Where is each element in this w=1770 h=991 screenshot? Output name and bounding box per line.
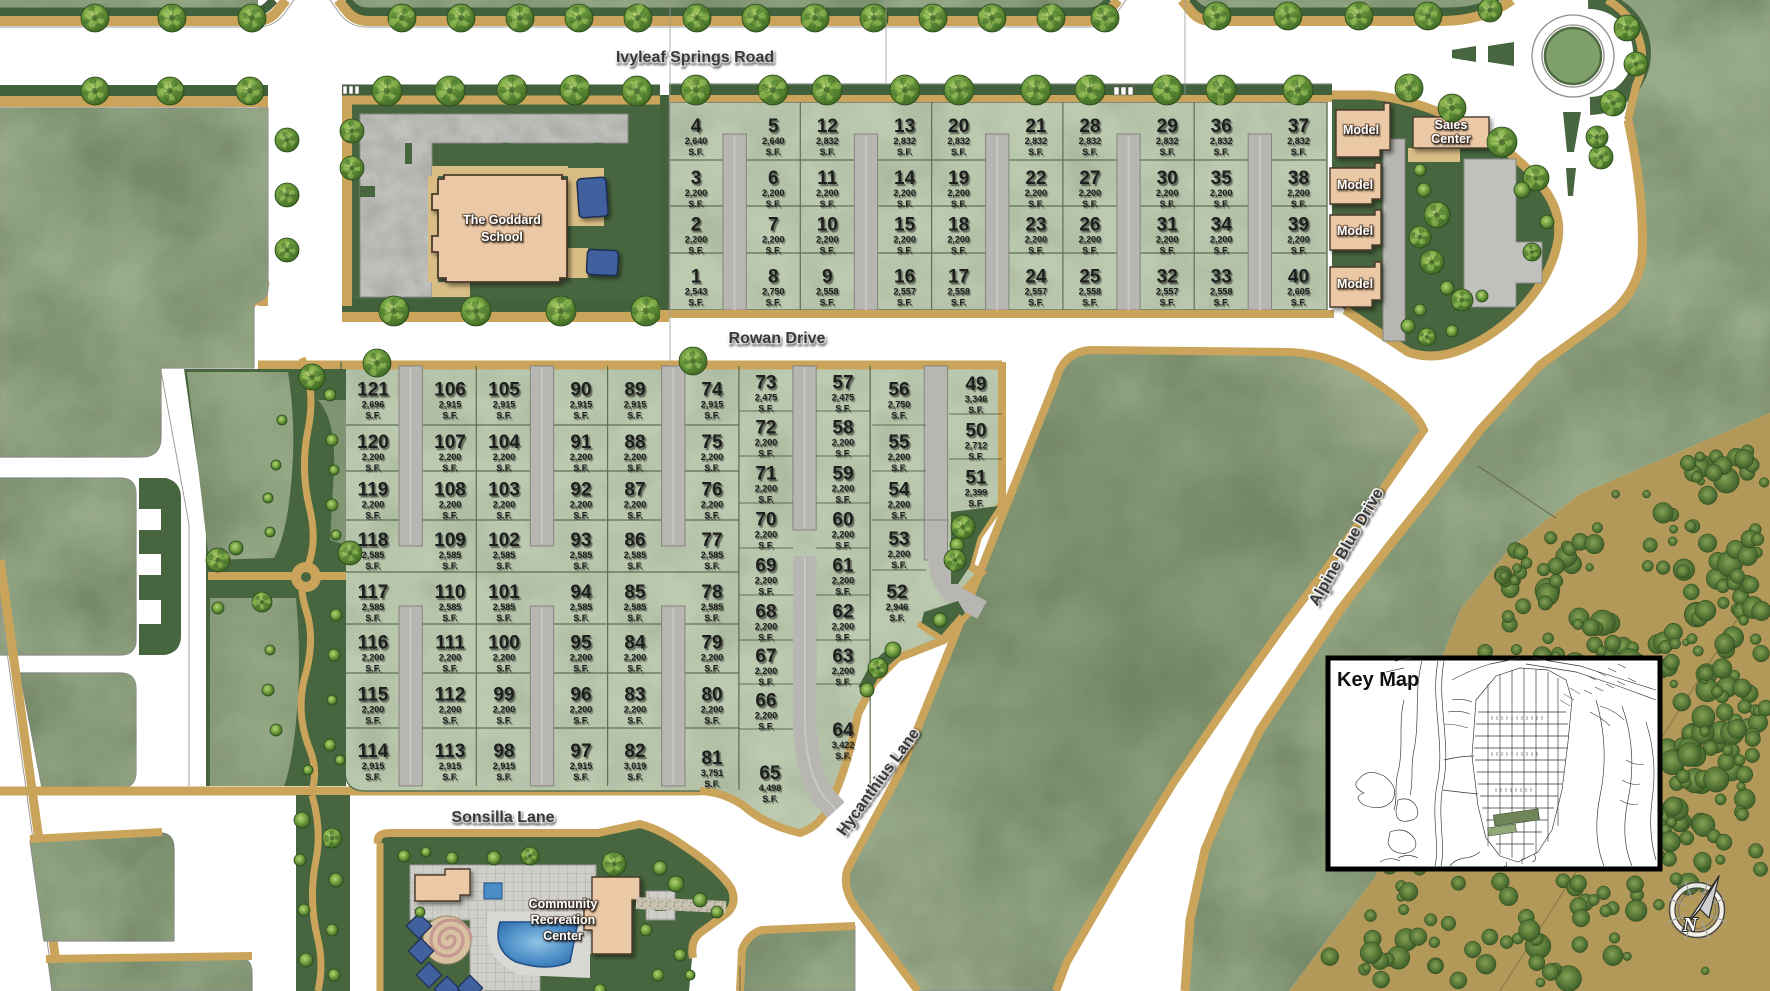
svg-text:S.F.: S.F. (573, 561, 589, 571)
svg-text:10: 10 (817, 215, 838, 236)
svg-text:32: 32 (1157, 267, 1178, 288)
svg-text:2,200: 2,200 (832, 438, 855, 448)
svg-text:S.F.: S.F. (1159, 298, 1175, 308)
svg-text:S.F.: S.F. (688, 199, 704, 209)
svg-text:2,200: 2,200 (439, 705, 462, 715)
svg-text:S.F.: S.F. (496, 613, 512, 623)
svg-text:27: 27 (1079, 168, 1100, 189)
svg-text:S.F.: S.F. (766, 147, 782, 157)
svg-text:S.F.: S.F. (442, 772, 458, 782)
svg-text:2,585: 2,585 (439, 550, 462, 560)
svg-text:Center: Center (543, 929, 583, 943)
svg-text:S.F.: S.F. (627, 772, 643, 782)
svg-text:S.F.: S.F. (835, 495, 851, 505)
svg-text:21: 21 (1025, 116, 1047, 137)
svg-text:S.F.: S.F. (835, 449, 851, 459)
svg-text:S.F.: S.F. (704, 511, 720, 521)
svg-text:Center: Center (1431, 132, 1471, 146)
svg-text:80: 80 (701, 685, 722, 706)
svg-text:24: 24 (1025, 267, 1047, 288)
svg-text:53: 53 (888, 529, 909, 550)
svg-text:111: 111 (435, 633, 465, 654)
svg-text:S.F.: S.F. (442, 511, 458, 521)
svg-text:S.F.: S.F. (835, 587, 851, 597)
svg-text:S.F.: S.F. (1213, 147, 1229, 157)
svg-text:Ivyleaf Springs Road: Ivyleaf Springs Road (616, 49, 774, 66)
svg-text:15: 15 (894, 215, 916, 236)
svg-text:105: 105 (488, 380, 520, 401)
svg-text:S.F.: S.F. (897, 246, 913, 256)
svg-text:2,200: 2,200 (947, 188, 970, 198)
svg-text:2,200: 2,200 (439, 452, 462, 462)
svg-text:2,200: 2,200 (362, 500, 385, 510)
svg-text:109: 109 (434, 530, 466, 551)
svg-text:S.F.: S.F. (835, 404, 851, 414)
svg-text:2,200: 2,200 (570, 705, 593, 715)
svg-text:2,200: 2,200 (362, 705, 385, 715)
svg-text:2,200: 2,200 (493, 653, 516, 663)
svg-text:113: 113 (435, 741, 466, 762)
svg-text:2,200: 2,200 (832, 666, 855, 676)
svg-text:79: 79 (701, 633, 722, 654)
svg-text:2,543: 2,543 (685, 287, 708, 297)
svg-text:Recreation: Recreation (531, 913, 596, 927)
svg-text:S.F.: S.F. (704, 779, 720, 789)
svg-text:22: 22 (1025, 168, 1046, 189)
svg-text:58: 58 (832, 418, 853, 439)
svg-text:101: 101 (488, 582, 520, 603)
svg-text:S.F.: S.F. (688, 147, 704, 157)
svg-text:2,399: 2,399 (965, 488, 988, 498)
svg-text:2,585: 2,585 (701, 550, 724, 560)
svg-text:2,200: 2,200 (1079, 188, 1102, 198)
svg-text:100: 100 (488, 633, 520, 654)
svg-text:2,200: 2,200 (947, 235, 970, 245)
svg-text:98: 98 (493, 741, 514, 762)
svg-text:S.F.: S.F. (1213, 199, 1229, 209)
svg-text:54: 54 (888, 480, 910, 501)
svg-text:38: 38 (1288, 168, 1309, 189)
svg-text:2,832: 2,832 (1156, 136, 1179, 146)
svg-text:2,200: 2,200 (1079, 235, 1102, 245)
svg-text:S.F.: S.F. (442, 716, 458, 726)
svg-text:S.F.: S.F. (758, 677, 774, 687)
svg-text:Rowan Drive: Rowan Drive (729, 330, 826, 347)
svg-text:51: 51 (965, 468, 987, 489)
svg-text:S.F.: S.F. (766, 298, 782, 308)
svg-text:S.F.: S.F. (627, 561, 643, 571)
svg-text:76: 76 (701, 480, 722, 501)
svg-text:S.F.: S.F. (968, 452, 984, 462)
svg-text:92: 92 (570, 480, 591, 501)
svg-text:5: 5 (768, 116, 779, 137)
svg-text:2,712: 2,712 (965, 441, 988, 451)
svg-text:Model: Model (1337, 277, 1373, 291)
svg-text:82: 82 (624, 741, 645, 762)
svg-text:85: 85 (624, 582, 646, 603)
svg-text:78: 78 (701, 582, 722, 603)
svg-text:71: 71 (755, 464, 777, 485)
svg-text:67: 67 (755, 646, 776, 667)
svg-text:2,915: 2,915 (439, 400, 462, 410)
svg-text:117: 117 (358, 582, 389, 603)
svg-text:S.F.: S.F. (688, 246, 704, 256)
svg-text:2,475: 2,475 (832, 393, 855, 403)
svg-text:2,200: 2,200 (832, 530, 855, 540)
svg-text:2,832: 2,832 (1025, 136, 1048, 146)
svg-text:7: 7 (768, 215, 779, 236)
svg-text:119: 119 (358, 480, 389, 501)
svg-text:2,558: 2,558 (947, 287, 970, 297)
svg-text:16: 16 (894, 267, 915, 288)
svg-text:2,200: 2,200 (362, 452, 385, 462)
svg-text:S.F.: S.F. (704, 664, 720, 674)
svg-text:49: 49 (965, 374, 986, 395)
svg-text:93: 93 (570, 530, 591, 551)
svg-text:2,200: 2,200 (439, 500, 462, 510)
svg-text:2,915: 2,915 (439, 761, 462, 771)
svg-text:4: 4 (691, 116, 702, 137)
svg-text:70: 70 (755, 510, 776, 531)
svg-text:2,200: 2,200 (439, 653, 462, 663)
svg-text:2,585: 2,585 (362, 602, 385, 612)
svg-text:School: School (481, 230, 523, 244)
svg-text:S.F.: S.F. (627, 613, 643, 623)
svg-text:2,200: 2,200 (701, 500, 724, 510)
svg-text:77: 77 (701, 530, 722, 551)
svg-text:2,200: 2,200 (701, 705, 724, 715)
svg-text:S.F.: S.F. (758, 404, 774, 414)
svg-text:121: 121 (357, 380, 389, 401)
svg-text:2,200: 2,200 (755, 484, 778, 494)
svg-text:2,200: 2,200 (701, 452, 724, 462)
svg-text:S.F.: S.F. (897, 298, 913, 308)
svg-text:37: 37 (1288, 116, 1309, 137)
svg-text:2,832: 2,832 (947, 136, 970, 146)
svg-text:S.F.: S.F. (573, 511, 589, 521)
svg-text:2,200: 2,200 (1025, 235, 1048, 245)
svg-text:S.F.: S.F. (573, 613, 589, 623)
svg-text:S.F.: S.F. (891, 411, 907, 421)
svg-text:96: 96 (570, 685, 591, 706)
svg-text:S.F.: S.F. (951, 298, 967, 308)
svg-text:S.F.: S.F. (1028, 298, 1044, 308)
svg-text:S.F.: S.F. (1159, 147, 1175, 157)
svg-text:The Goddard: The Goddard (463, 213, 541, 227)
svg-text:2,200: 2,200 (570, 500, 593, 510)
svg-text:S.F.: S.F. (365, 463, 381, 473)
svg-text:2,200: 2,200 (685, 235, 708, 245)
svg-text:S.F.: S.F. (766, 246, 782, 256)
svg-text:30: 30 (1157, 168, 1178, 189)
svg-text:20: 20 (948, 116, 969, 137)
svg-text:2,832: 2,832 (1079, 136, 1102, 146)
svg-text:2: 2 (691, 215, 702, 236)
svg-text:39: 39 (1288, 215, 1309, 236)
svg-text:2,946: 2,946 (886, 602, 909, 612)
svg-text:S.F.: S.F. (891, 463, 907, 473)
svg-text:S.F.: S.F. (1291, 199, 1307, 209)
svg-text:9: 9 (822, 267, 833, 288)
svg-text:2,557: 2,557 (893, 287, 916, 297)
svg-text:59: 59 (832, 464, 853, 485)
svg-text:108: 108 (434, 480, 466, 501)
svg-text:S.F.: S.F. (496, 511, 512, 521)
svg-text:2,750: 2,750 (888, 400, 911, 410)
svg-text:S.F.: S.F. (835, 541, 851, 551)
svg-text:84: 84 (624, 633, 646, 654)
svg-text:S.F.: S.F. (1082, 246, 1098, 256)
svg-text:S.F.: S.F. (627, 411, 643, 421)
svg-text:13: 13 (894, 116, 915, 137)
svg-text:2,696: 2,696 (362, 400, 385, 410)
svg-text:57: 57 (832, 373, 853, 394)
svg-text:91: 91 (570, 432, 592, 453)
svg-text:72: 72 (755, 418, 776, 439)
svg-text:Key Map: Key Map (1337, 669, 1419, 691)
svg-text:23: 23 (1025, 215, 1046, 236)
svg-text:97: 97 (570, 741, 591, 762)
svg-text:S.F.: S.F. (496, 772, 512, 782)
svg-text:S.F.: S.F. (951, 147, 967, 157)
svg-text:66: 66 (755, 691, 776, 712)
svg-text:2,915: 2,915 (624, 400, 647, 410)
svg-text:2,200: 2,200 (755, 622, 778, 632)
svg-text:4,498: 4,498 (759, 783, 782, 793)
svg-text:35: 35 (1211, 168, 1233, 189)
svg-text:106: 106 (434, 380, 466, 401)
svg-text:2,200: 2,200 (1156, 188, 1179, 198)
svg-text:74: 74 (701, 380, 723, 401)
svg-text:56: 56 (888, 380, 909, 401)
svg-text:S.F.: S.F. (688, 298, 704, 308)
svg-text:Community: Community (529, 897, 598, 911)
svg-text:2,750: 2,750 (762, 287, 785, 297)
svg-text:73: 73 (755, 373, 776, 394)
svg-text:S.F.: S.F. (820, 147, 836, 157)
svg-text:2,200: 2,200 (1025, 188, 1048, 198)
svg-text:S.F.: S.F. (365, 716, 381, 726)
svg-text:S.F.: S.F. (968, 405, 984, 415)
svg-text:63: 63 (832, 646, 853, 667)
svg-text:2,200: 2,200 (493, 500, 516, 510)
svg-text:87: 87 (624, 480, 645, 501)
svg-text:S.F.: S.F. (951, 246, 967, 256)
svg-text:Model: Model (1337, 178, 1373, 192)
svg-text:S.F.: S.F. (496, 716, 512, 726)
svg-text:36: 36 (1211, 116, 1232, 137)
svg-text:2,915: 2,915 (701, 400, 724, 410)
svg-text:19: 19 (948, 168, 969, 189)
svg-text:2,915: 2,915 (570, 761, 593, 771)
svg-text:Model: Model (1337, 224, 1373, 238)
svg-text:28: 28 (1079, 116, 1100, 137)
svg-text:2,200: 2,200 (755, 666, 778, 676)
svg-text:2,200: 2,200 (816, 188, 839, 198)
svg-text:2,200: 2,200 (832, 484, 855, 494)
svg-text:S.F.: S.F. (835, 633, 851, 643)
svg-text:S.F.: S.F. (365, 411, 381, 421)
svg-text:2,200: 2,200 (624, 653, 647, 663)
svg-text:2,200: 2,200 (762, 235, 785, 245)
svg-text:S.F.: S.F. (365, 613, 381, 623)
svg-text:2,558: 2,558 (1079, 287, 1102, 297)
svg-text:18: 18 (948, 215, 969, 236)
svg-text:89: 89 (624, 380, 645, 401)
svg-text:2,557: 2,557 (1156, 287, 1179, 297)
svg-text:S.F.: S.F. (627, 511, 643, 521)
svg-text:S.F.: S.F. (820, 246, 836, 256)
svg-text:3,422: 3,422 (832, 740, 855, 750)
svg-text:25: 25 (1079, 267, 1101, 288)
svg-text:S.F.: S.F. (496, 561, 512, 571)
svg-text:6: 6 (768, 168, 779, 189)
svg-text:99: 99 (493, 685, 514, 706)
svg-text:104: 104 (488, 432, 520, 453)
svg-text:S.F.: S.F. (1159, 246, 1175, 256)
svg-text:2,200: 2,200 (701, 653, 724, 663)
svg-text:2,200: 2,200 (570, 452, 593, 462)
svg-text:2,200: 2,200 (832, 622, 855, 632)
svg-text:31: 31 (1157, 215, 1179, 236)
svg-text:2,558: 2,558 (1210, 287, 1233, 297)
svg-text:S.F.: S.F. (365, 561, 381, 571)
svg-text:S.F.: S.F. (758, 587, 774, 597)
svg-text:S.F.: S.F. (1159, 199, 1175, 209)
svg-text:S.F.: S.F. (762, 794, 778, 804)
svg-text:S.F.: S.F. (442, 411, 458, 421)
svg-text:50: 50 (965, 421, 986, 442)
svg-text:86: 86 (624, 530, 645, 551)
svg-text:2,200: 2,200 (755, 576, 778, 586)
svg-text:S.F.: S.F. (1291, 147, 1307, 157)
svg-text:2,585: 2,585 (570, 550, 593, 560)
svg-text:69: 69 (755, 556, 776, 577)
svg-text:3,751: 3,751 (701, 768, 724, 778)
svg-text:2,200: 2,200 (362, 653, 385, 663)
svg-text:120: 120 (357, 432, 389, 453)
svg-text:2,200: 2,200 (888, 500, 911, 510)
svg-text:S.F.: S.F. (766, 199, 782, 209)
svg-text:2,200: 2,200 (1287, 188, 1310, 198)
svg-text:1: 1 (691, 267, 702, 288)
svg-text:2,200: 2,200 (888, 549, 911, 559)
svg-text:2,200: 2,200 (1210, 235, 1233, 245)
svg-text:2,585: 2,585 (362, 550, 385, 560)
svg-text:S.F.: S.F. (758, 633, 774, 643)
svg-text:S.F.: S.F. (951, 199, 967, 209)
svg-text:2,200: 2,200 (685, 188, 708, 198)
svg-text:64: 64 (832, 720, 854, 741)
svg-text:2,200: 2,200 (888, 452, 911, 462)
svg-text:2,585: 2,585 (493, 602, 516, 612)
svg-text:2,915: 2,915 (570, 400, 593, 410)
svg-text:S.F.: S.F. (365, 664, 381, 674)
svg-text:2,585: 2,585 (570, 602, 593, 612)
svg-text:88: 88 (624, 432, 645, 453)
svg-text:2,200: 2,200 (493, 452, 516, 462)
svg-text:S.F.: S.F. (442, 664, 458, 674)
svg-text:S.F.: S.F. (365, 772, 381, 782)
svg-text:Sonsilla Lane: Sonsilla Lane (451, 809, 554, 826)
svg-text:2,200: 2,200 (493, 705, 516, 715)
svg-text:2,640: 2,640 (685, 136, 708, 146)
svg-text:S.F.: S.F. (820, 199, 836, 209)
svg-text:102: 102 (488, 530, 520, 551)
svg-text:103: 103 (488, 480, 520, 501)
svg-text:S.F.: S.F. (820, 298, 836, 308)
svg-text:52: 52 (886, 582, 907, 603)
svg-text:2,832: 2,832 (1210, 136, 1233, 146)
svg-text:2,605: 2,605 (1287, 287, 1310, 297)
svg-text:62: 62 (832, 602, 853, 623)
svg-text:90: 90 (570, 380, 591, 401)
svg-text:S.F.: S.F. (1082, 298, 1098, 308)
svg-text:2,475: 2,475 (755, 393, 778, 403)
svg-text:S.F.: S.F. (1213, 298, 1229, 308)
svg-text:81: 81 (701, 748, 723, 769)
svg-text:S.F.: S.F. (704, 463, 720, 473)
svg-text:2,200: 2,200 (816, 235, 839, 245)
svg-text:2,200: 2,200 (755, 530, 778, 540)
svg-text:2,640: 2,640 (762, 136, 785, 146)
svg-text:2,915: 2,915 (493, 761, 516, 771)
svg-text:S.F.: S.F. (573, 411, 589, 421)
svg-text:2,200: 2,200 (1210, 188, 1233, 198)
svg-text:11: 11 (817, 168, 838, 189)
svg-text:S.F.: S.F. (442, 463, 458, 473)
svg-text:2,200: 2,200 (570, 653, 593, 663)
svg-text:2,558: 2,558 (816, 287, 839, 297)
svg-text:2,200: 2,200 (893, 188, 916, 198)
svg-text:2,200: 2,200 (624, 705, 647, 715)
svg-text:S.F.: S.F. (573, 716, 589, 726)
svg-text:29: 29 (1157, 116, 1178, 137)
svg-text:S.F.: S.F. (365, 511, 381, 521)
svg-text:2,557: 2,557 (1025, 287, 1048, 297)
svg-text:116: 116 (358, 633, 389, 654)
svg-text:S.F.: S.F. (1291, 298, 1307, 308)
svg-text:S.F.: S.F. (627, 664, 643, 674)
svg-text:115: 115 (358, 685, 389, 706)
svg-text:S.F.: S.F. (758, 722, 774, 732)
svg-text:S.F.: S.F. (442, 561, 458, 571)
svg-text:2,585: 2,585 (624, 602, 647, 612)
svg-text:3,019: 3,019 (624, 761, 647, 771)
svg-text:75: 75 (701, 432, 723, 453)
svg-text:N: N (1682, 914, 1699, 936)
svg-text:S.F.: S.F. (1028, 147, 1044, 157)
svg-text:114: 114 (358, 741, 389, 762)
svg-text:65: 65 (759, 763, 781, 784)
svg-text:55: 55 (888, 432, 910, 453)
svg-text:S.F.: S.F. (704, 716, 720, 726)
svg-text:S.F.: S.F. (704, 613, 720, 623)
svg-text:S.F.: S.F. (704, 411, 720, 421)
svg-text:8: 8 (768, 267, 779, 288)
svg-text:2,200: 2,200 (832, 576, 855, 586)
svg-text:34: 34 (1211, 215, 1233, 236)
svg-text:S.F.: S.F. (1213, 246, 1229, 256)
svg-text:83: 83 (624, 685, 645, 706)
svg-text:S.F.: S.F. (496, 463, 512, 473)
svg-text:2,200: 2,200 (1287, 235, 1310, 245)
svg-text:2,200: 2,200 (755, 711, 778, 721)
svg-text:107: 107 (434, 432, 466, 453)
svg-text:2,832: 2,832 (1287, 136, 1310, 146)
svg-text:118: 118 (358, 530, 389, 551)
svg-text:S.F.: S.F. (891, 511, 907, 521)
